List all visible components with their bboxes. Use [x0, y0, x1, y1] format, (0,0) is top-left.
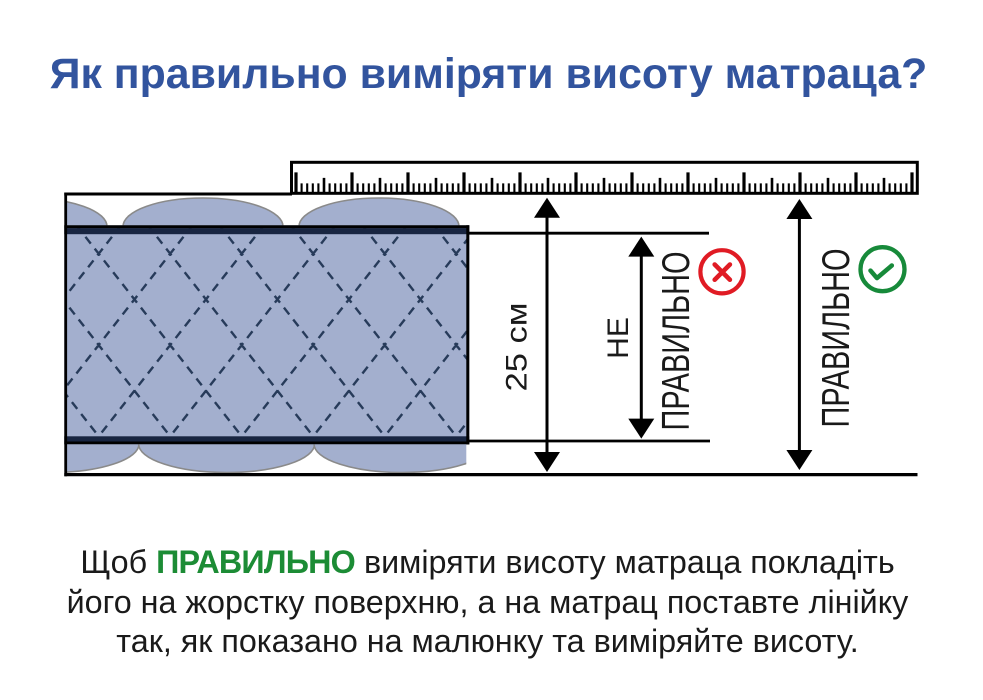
svg-text:НЕ: НЕ: [602, 317, 635, 359]
svg-text:25 см: 25 см: [500, 303, 533, 392]
svg-text:ПРАВИЛЬНО: ПРАВИЛЬНО: [655, 252, 698, 431]
svg-text:ПРАВИЛЬНО: ПРАВИЛЬНО: [815, 249, 858, 428]
